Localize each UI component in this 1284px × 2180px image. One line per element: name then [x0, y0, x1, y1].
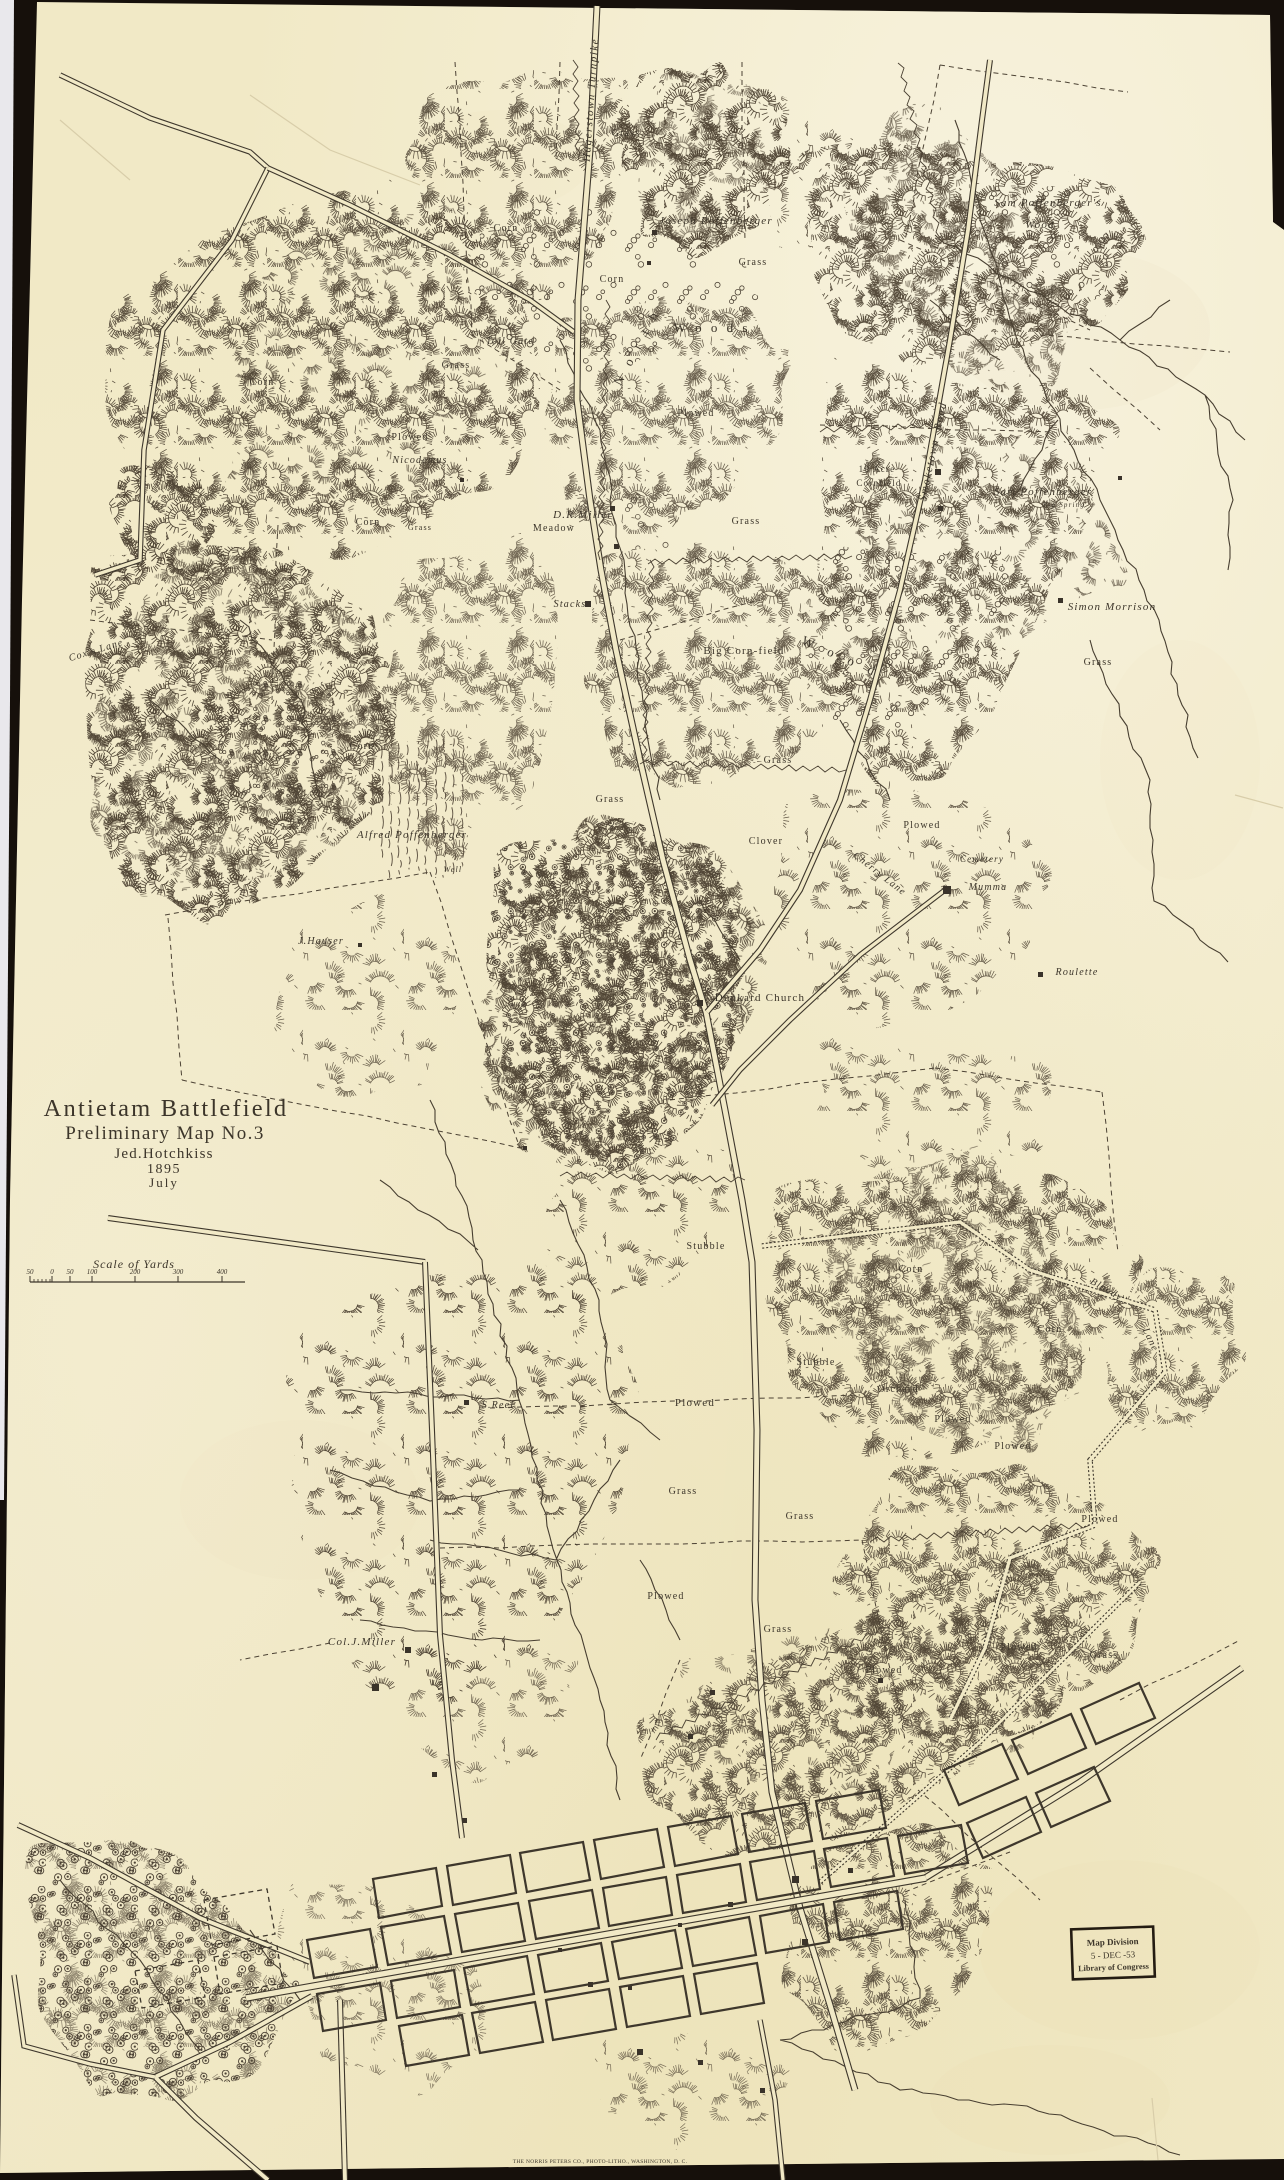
svg-text:Grass: Grass: [764, 1624, 793, 1635]
svg-text:Sam Poffenberger's: Sam Poffenberger's: [994, 197, 1102, 209]
svg-text:Plowed: Plowed: [391, 432, 428, 443]
svg-text:Joseph Poffenberger: Joseph Poffenberger: [659, 215, 773, 227]
svg-text:Plowed: Plowed: [865, 1665, 902, 1676]
svg-text:Preliminary Map No.3: Preliminary Map No.3: [65, 1123, 265, 1144]
svg-text:Antietam Battlefield: Antietam Battlefield: [44, 1095, 289, 1122]
svg-text:Stubble: Stubble: [687, 1241, 726, 1252]
svg-text:July: July: [149, 1175, 179, 1190]
svg-text:Toll Gate: Toll Gate: [486, 336, 534, 347]
svg-text:Plowed: Plowed: [903, 820, 940, 831]
svg-text:Sam Poffenberger: Sam Poffenberger: [994, 486, 1093, 498]
svg-text:0: 0: [50, 1268, 54, 1276]
svg-text:Mumma: Mumma: [968, 882, 1008, 893]
svg-text:J.Hauser: J.Hauser: [298, 936, 344, 947]
svg-text:Corn: Corn: [494, 223, 519, 234]
svg-text:Grass: Grass: [612, 128, 641, 139]
svg-text:Grass: Grass: [408, 523, 432, 532]
svg-text:Plowed: Plowed: [647, 1591, 684, 1602]
svg-text:Grass: Grass: [1084, 657, 1113, 668]
svg-text:Plowed: Plowed: [677, 408, 714, 419]
svg-text:400: 400: [217, 1268, 228, 1276]
svg-text:Plowed: Plowed: [934, 1414, 971, 1425]
svg-text:Col.J.Miller: Col.J.Miller: [328, 1636, 396, 1648]
svg-text:Well: Well: [444, 865, 463, 874]
svg-text:Clover: Clover: [749, 836, 783, 847]
svg-text:Grass: Grass: [739, 257, 768, 268]
svg-text:Meadow: Meadow: [533, 523, 575, 534]
svg-text:Jed.Hotchkiss: Jed.Hotchkiss: [114, 1146, 213, 1162]
svg-text:Roulette: Roulette: [1055, 967, 1099, 978]
svg-text:Grass: Grass: [786, 1511, 815, 1522]
svg-text:Simon Morrison: Simon Morrison: [1068, 601, 1157, 613]
svg-text:Grass: Grass: [596, 794, 625, 805]
svg-text:50: 50: [67, 1268, 75, 1276]
svg-text:Corn: Corn: [250, 377, 275, 388]
svg-text:Plowed: Plowed: [994, 1441, 1031, 1452]
svg-text:Grass: Grass: [1090, 1650, 1119, 1661]
svg-text:Corn: Corn: [600, 274, 625, 285]
svg-text:Corn: Corn: [350, 741, 375, 752]
svg-text:Grass: Grass: [669, 1486, 698, 1497]
svg-text:S.Reel: S.Reel: [482, 1400, 514, 1411]
svg-text:Corn: Corn: [356, 517, 381, 528]
svg-text:Nicodemus: Nicodemus: [391, 455, 447, 466]
svg-text:50: 50: [27, 1268, 35, 1276]
svg-text:5 - DEC -53: 5 - DEC -53: [1091, 1949, 1136, 1961]
svg-text:200: 200: [130, 1268, 141, 1276]
svg-text:Grass: Grass: [764, 755, 793, 766]
svg-text:Cornfield: Cornfield: [856, 478, 901, 488]
svg-text:Alfred Poffenberger: Alfred Poffenberger: [356, 829, 467, 841]
svg-text:Plowed: Plowed: [1081, 1514, 1118, 1525]
svg-text:Corn: Corn: [1038, 1324, 1063, 1335]
svg-text:Plowed: Plowed: [675, 1397, 715, 1409]
svg-text:Grass: Grass: [732, 516, 761, 527]
svg-text:Cemetery: Cemetery: [960, 854, 1004, 864]
svg-text:W o o d s: W o o d s: [674, 320, 751, 335]
svg-text:Orchard: Orchard: [877, 1384, 918, 1395]
svg-text:Wood: Wood: [1025, 219, 1054, 231]
svg-text:Big Corn-field: Big Corn-field: [703, 645, 784, 657]
svg-text:10 Acre: 10 Acre: [859, 464, 896, 474]
svg-text:300: 300: [172, 1268, 184, 1276]
svg-text:Grass: Grass: [442, 360, 471, 371]
svg-text:100: 100: [87, 1268, 98, 1276]
svg-text:Corn: Corn: [899, 1264, 924, 1275]
svg-text:Map Division: Map Division: [1087, 1936, 1139, 1948]
svg-text:THE NORRIS PETERS CO., PHOTO-L: THE NORRIS PETERS CO., PHOTO-LITHO., WAS…: [513, 2159, 688, 2165]
svg-text:Big Spring: Big Spring: [1043, 501, 1085, 509]
svg-text:Dunkard Church: Dunkard Church: [715, 992, 805, 1004]
svg-text:Stacks: Stacks: [554, 599, 587, 610]
svg-text:Plowed: Plowed: [1000, 1642, 1037, 1653]
svg-text:Stubble: Stubble: [797, 1357, 836, 1368]
svg-text:D.R.Miller: D.R.Miller: [552, 509, 613, 521]
